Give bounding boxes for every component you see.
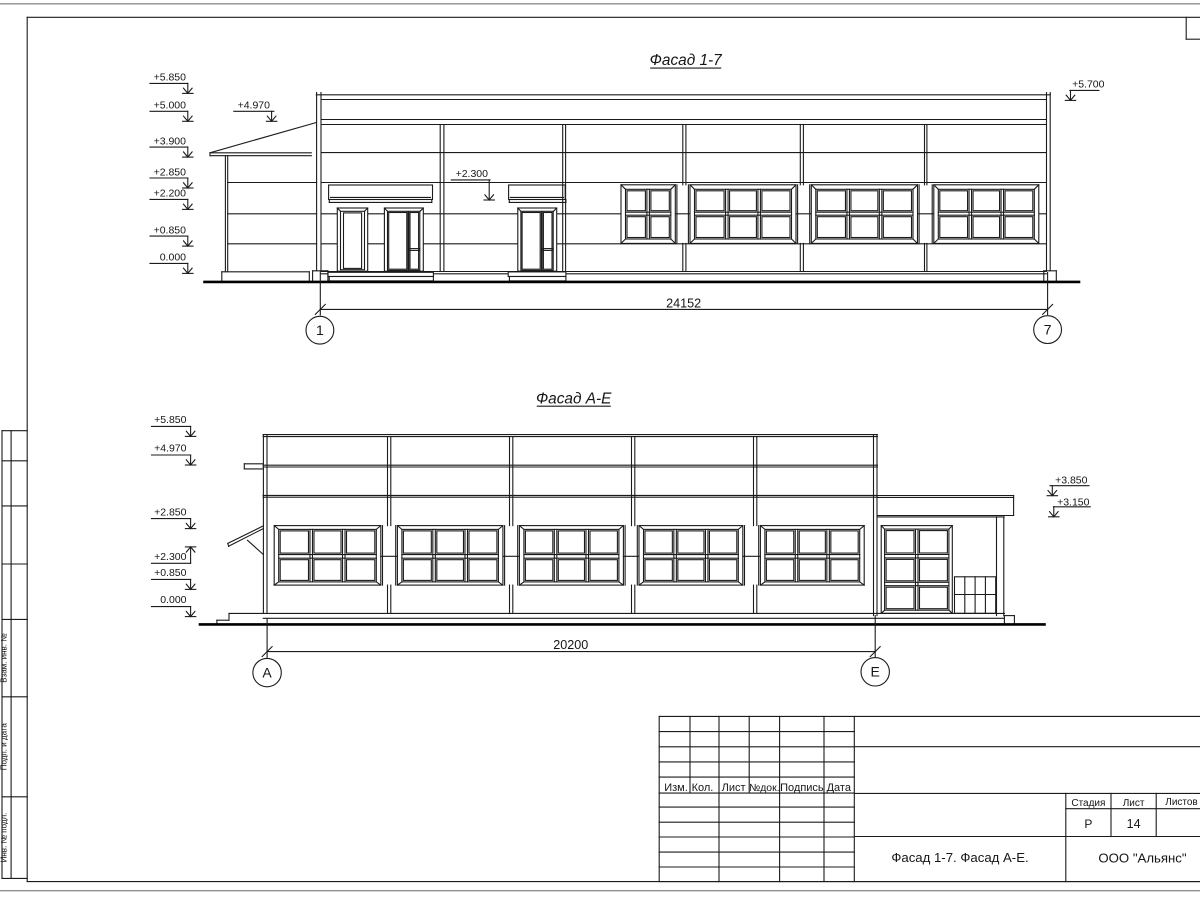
svg-text:Лист: Лист bbox=[1123, 798, 1145, 809]
svg-text:Стадия: Стадия bbox=[1071, 798, 1105, 809]
svg-text:Фасад 1-7. Фасад А-Е.: Фасад 1-7. Фасад А-Е. bbox=[891, 850, 1028, 865]
svg-text:Р: Р bbox=[1084, 817, 1092, 831]
svg-text:+5.700: +5.700 bbox=[1072, 78, 1105, 90]
svg-text:Кол.: Кол. bbox=[692, 782, 714, 794]
svg-text:Е: Е bbox=[871, 664, 880, 680]
svg-text:№док.: №док. bbox=[749, 783, 779, 794]
svg-text:Подп. и дата: Подп. и дата bbox=[0, 723, 9, 771]
svg-text:+4.970: +4.970 bbox=[154, 443, 187, 455]
svg-text:Фасад 1-7: Фасад 1-7 bbox=[650, 52, 724, 69]
svg-text:+4.970: +4.970 bbox=[238, 100, 271, 112]
svg-text:Фасад А-Е: Фасад А-Е bbox=[536, 390, 612, 407]
svg-text:Подпись: Подпись bbox=[780, 782, 824, 794]
svg-text:Листов: Листов bbox=[1165, 797, 1198, 808]
svg-text:ООО "Альянс": ООО "Альянс" bbox=[1098, 851, 1186, 866]
svg-text:1: 1 bbox=[316, 322, 324, 338]
svg-text:+2.300: +2.300 bbox=[456, 168, 489, 180]
svg-text:Дата: Дата bbox=[827, 782, 852, 794]
svg-text:Лист: Лист bbox=[722, 782, 746, 794]
svg-text:+3.850: +3.850 bbox=[1055, 475, 1088, 487]
svg-text:+5.000: +5.000 bbox=[154, 100, 187, 112]
svg-text:+0.850: +0.850 bbox=[154, 567, 187, 579]
svg-text:20200: 20200 bbox=[553, 638, 588, 652]
svg-text:14: 14 bbox=[1127, 817, 1141, 831]
svg-text:+0.850: +0.850 bbox=[154, 224, 187, 236]
svg-text:+5.850: +5.850 bbox=[154, 72, 187, 84]
svg-text:Взам. инв. №: Взам. инв. № bbox=[0, 633, 9, 683]
svg-text:Изм.: Изм. bbox=[664, 782, 688, 794]
svg-text:24152: 24152 bbox=[666, 296, 701, 310]
svg-text:+5.850: +5.850 bbox=[154, 414, 187, 426]
svg-text:0.000: 0.000 bbox=[160, 252, 186, 264]
svg-text:7: 7 bbox=[1044, 322, 1052, 338]
svg-text:+2.300: +2.300 bbox=[154, 551, 187, 563]
svg-text:0.000: 0.000 bbox=[160, 594, 186, 606]
svg-text:+2.850: +2.850 bbox=[154, 166, 187, 178]
svg-text:+2.850: +2.850 bbox=[154, 507, 187, 519]
svg-text:+2.200: +2.200 bbox=[154, 188, 187, 200]
svg-text:А: А bbox=[262, 665, 272, 681]
svg-text:Инв. № подл.: Инв. № подл. bbox=[0, 813, 9, 863]
svg-text:+3.900: +3.900 bbox=[154, 136, 187, 148]
